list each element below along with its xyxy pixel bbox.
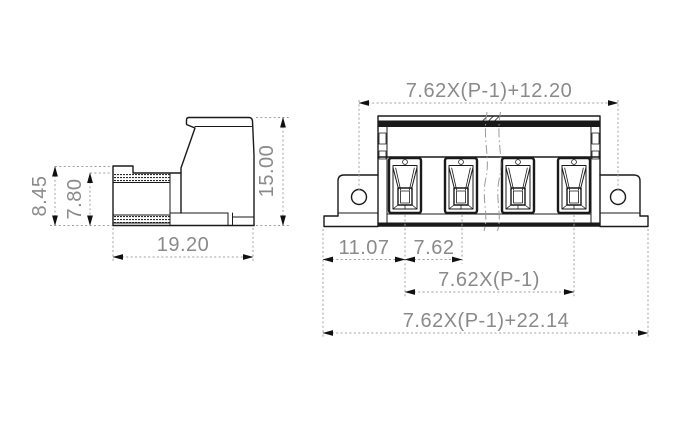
terminal-opening-4 (558, 158, 590, 213)
dim-height-body: 7.80 (64, 173, 112, 226)
dim-overall-width: 7.62X(P-1)+22.14 (323, 310, 648, 333)
dim-label-15-00: 15.00 (256, 145, 278, 198)
side-view: 8.45 7.80 15.00 19.20 (29, 118, 291, 264)
mounting-flange-right (600, 175, 648, 227)
terminal-block-drawing: 8.45 7.80 15.00 19.20 (0, 0, 680, 440)
front-view-housing (378, 116, 600, 227)
terminal-opening-1 (389, 158, 421, 213)
dim-label-7-80: 7.80 (64, 179, 86, 220)
dim-label-19-20: 19.20 (157, 234, 210, 256)
dim-label-hole-span: 7.62X(P-1)+12.20 (406, 80, 572, 102)
break-lines (484, 112, 501, 231)
mounting-hole-left (352, 190, 367, 205)
dim-height-total: 15.00 (256, 118, 291, 226)
mounting-flange-left (324, 175, 378, 227)
mounting-hole-right (611, 190, 626, 205)
dim-pole-span: 7.62X(P-1) (405, 269, 574, 292)
side-view-plug-body (113, 166, 181, 226)
front-view: 7.62X(P-1)+12.20 11.07 7.62 7.62X(P-1) (323, 80, 648, 338)
terminal-opening-2 (445, 158, 477, 213)
side-view-tower (181, 118, 254, 226)
dim-mount-hole-span: 7.62X(P-1)+12.20 (359, 80, 618, 190)
dim-label-pole-span: 7.62X(P-1) (438, 269, 540, 291)
top-cover-strip (378, 122, 600, 128)
technical-drawing-page: 8.45 7.80 15.00 19.20 (0, 0, 680, 440)
dim-label-overall-width: 7.62X(P-1)+22.14 (403, 310, 569, 332)
dim-label-7-62: 7.62 (414, 237, 455, 259)
bottom-strip (378, 223, 600, 227)
dim-label-8-45: 8.45 (29, 176, 51, 217)
dim-depth: 19.20 (113, 228, 253, 263)
dim-pole-pitch: 7.62 (405, 237, 462, 260)
dim-first-pole-offset: 11.07 (323, 237, 405, 260)
terminal-opening-3 (502, 158, 534, 213)
dim-label-11-07: 11.07 (338, 237, 389, 259)
